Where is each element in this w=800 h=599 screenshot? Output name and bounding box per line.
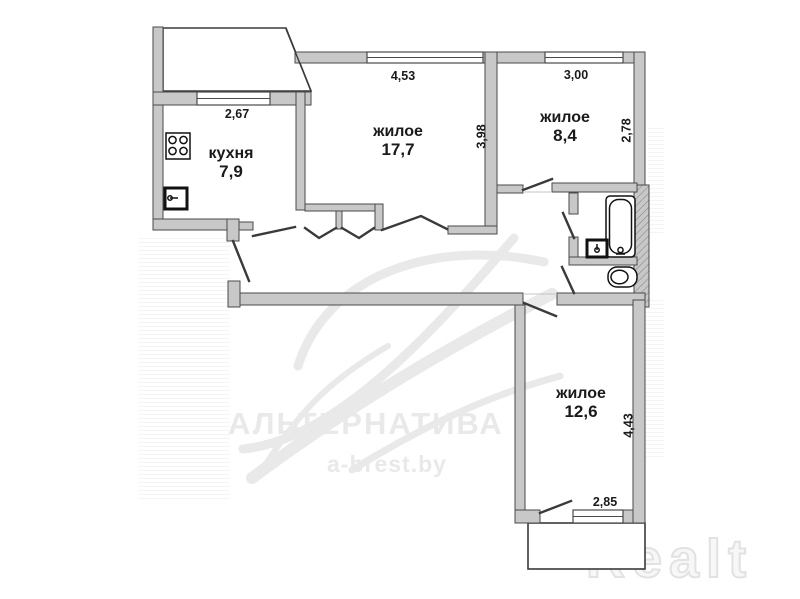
dim-living1-depth: 3,98 (475, 107, 490, 167)
balcony-door (540, 501, 571, 513)
balcony-bottom (528, 523, 645, 569)
kitchen-sink-icon (165, 188, 187, 209)
room-label-living1: жилое 17,7 (350, 123, 446, 159)
closet-left-door (305, 228, 336, 238)
room-name: жилое (350, 123, 446, 141)
dim-living2-width: 3,00 (546, 68, 606, 83)
bathroom-door (563, 213, 574, 238)
living3-door (524, 303, 556, 316)
room-area: 7,9 (186, 163, 276, 181)
floor-plan-image: АЛЬТЕРНАТИВА a-brest.by Realt (0, 0, 800, 599)
living1-door (382, 216, 447, 230)
room-area: 8,4 (519, 127, 611, 145)
living3-window (573, 510, 623, 523)
toilet-icon (608, 267, 637, 287)
room-area: 12,6 (534, 403, 628, 421)
living2-door (523, 179, 552, 190)
room-name: кухня (186, 145, 276, 163)
room-name: жилое (534, 385, 628, 403)
dim-living3-width: 2,85 (575, 495, 635, 510)
vent-shaft-wall (634, 185, 649, 307)
entry-door (233, 241, 249, 281)
living2-window (545, 52, 623, 63)
room-name: жилое (519, 109, 611, 127)
dim-kitchen-width: 2,67 (207, 107, 267, 122)
floor-plan-drawing (0, 0, 800, 599)
washbasin-icon (587, 240, 607, 257)
room-label-living3: жилое 12,6 (534, 385, 628, 421)
dim-living1-width: 4,53 (373, 69, 433, 84)
kitchen-door (253, 227, 295, 236)
dim-living3-depth: 4,43 (622, 396, 637, 456)
living1-window (367, 52, 483, 63)
room-label-living2: жилое 8,4 (519, 109, 611, 145)
bathtub-icon (606, 196, 635, 257)
toilet-door (562, 267, 574, 293)
room-area: 17,7 (350, 141, 446, 159)
kitchen-window (197, 92, 270, 105)
closet-right-door (342, 228, 374, 238)
dim-living2-depth: 2,78 (620, 101, 635, 161)
room-label-kitchen: кухня 7,9 (186, 145, 276, 181)
